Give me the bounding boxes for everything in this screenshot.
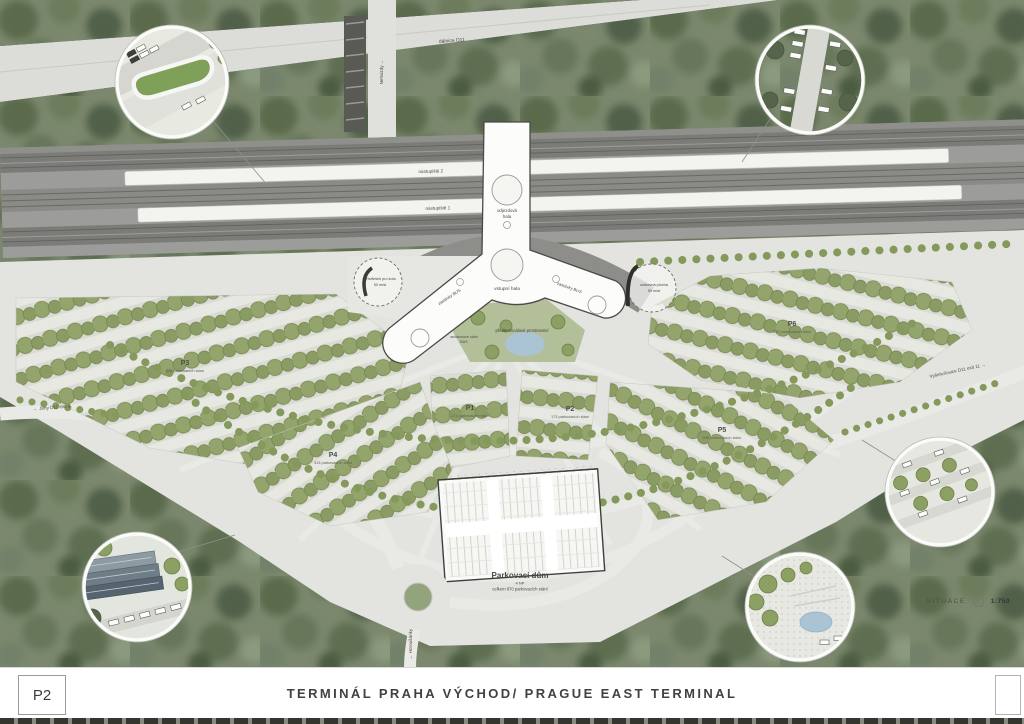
corner-box [995, 675, 1021, 715]
legend-type-label: SITUACE [927, 598, 966, 605]
legend: SITUACE 1:750 [927, 596, 1011, 607]
lot-p5-label: P5 [718, 427, 727, 434]
lot-p1-capacity: 171 parkovacích stání [451, 413, 490, 418]
platform-2-label: nástupiště 2 [418, 168, 443, 174]
entrance-skylight [491, 249, 523, 281]
departure-hall-label-2: hala [503, 214, 512, 219]
entrance-hall-label: vstupní hala [494, 286, 520, 292]
lot-p6-capacity: 639 parkovacích stání [773, 329, 812, 334]
departure-hall-label-1: odjezdová [497, 208, 518, 213]
drawing-sheet: dálnice D11 Nehvizdy → nástupiště 2 nást… [0, 0, 1024, 724]
plaza-pond [800, 612, 832, 632]
site-plan: dálnice D11 Nehvizdy → nástupiště 2 nást… [0, 0, 1024, 668]
lot-p3-label: P3 [181, 360, 190, 367]
title-bar: P2 TERMINÁL PRAHA VÝCHOD/ PRAGUE EAST TE… [0, 667, 1024, 724]
scan-edge-strip [0, 718, 1024, 724]
bus-bay-label-1: autobusové stání [450, 335, 477, 339]
bike-shelter: přístřešek pro kola 50 míst [354, 258, 402, 306]
platform-1-label: nástupiště 1 [425, 205, 450, 211]
lot-p6-label: P6 [788, 321, 797, 328]
bike-shelter-label-1: přístřešek pro kola [364, 277, 396, 281]
legend-scale: 1:750 [991, 598, 1010, 605]
bike-shelter-label-2: 50 míst [374, 283, 387, 287]
drawing-title: TERMINÁL PRAHA VÝCHOD/ PRAGUE EAST TERMI… [0, 668, 1024, 718]
lot-p5-capacity: 538 parkovacích stání [703, 435, 742, 440]
north-arrow-icon [973, 596, 984, 607]
bus-bay-label-2: BUS [460, 340, 468, 344]
lot-p2-capacity: 173 parkovacích stání [551, 414, 590, 419]
parking-house: Parkovací dům 4 NP celkem 870 parkovacíc… [438, 466, 605, 592]
forecourt-pond [505, 332, 545, 356]
lot-p4-capacity: 313 parkovacích stání [314, 460, 353, 465]
south-road-label: ← Horoušánky [408, 628, 413, 659]
north-road: Nehvizdy → [344, 0, 396, 152]
parking-house-floors: 4 NP [516, 581, 525, 586]
parking-house-total: celkem 870 parkovacích stání [492, 587, 548, 592]
parking-house-name: Parkovací dům [492, 571, 549, 580]
north-road-label: Nehvizdy → [379, 60, 384, 85]
lot-p1-label: P1 [466, 405, 475, 412]
bus-layover-label-1: odstavná plocha [640, 283, 669, 287]
bus-layover: odstavná plocha 50 míst [628, 264, 676, 312]
lot-p4-label: P4 [329, 452, 338, 459]
lot-p2-label: P2 [566, 406, 575, 413]
lot-p3-capacity: 628 parkovacích stání [166, 368, 205, 373]
forecourt-label: předterminálové prostranství [495, 328, 549, 333]
bus-layover-label-2: 50 míst [648, 289, 661, 293]
